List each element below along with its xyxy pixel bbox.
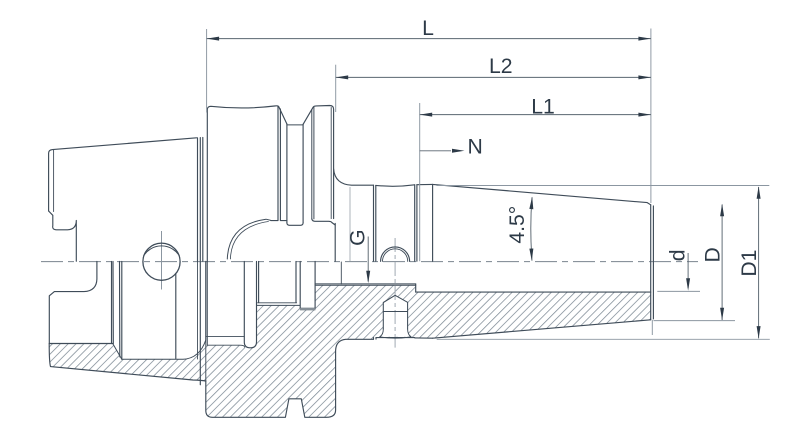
svg-text:D: D <box>702 247 725 262</box>
svg-text:L1: L1 <box>531 96 555 119</box>
svg-text:D1: D1 <box>738 250 761 277</box>
svg-text:4.5°: 4.5° <box>506 206 529 244</box>
svg-text:G: G <box>347 229 370 245</box>
svg-text:d: d <box>667 250 690 262</box>
svg-text:L2: L2 <box>489 55 513 78</box>
svg-text:N: N <box>468 135 483 158</box>
svg-text:L: L <box>422 17 434 40</box>
